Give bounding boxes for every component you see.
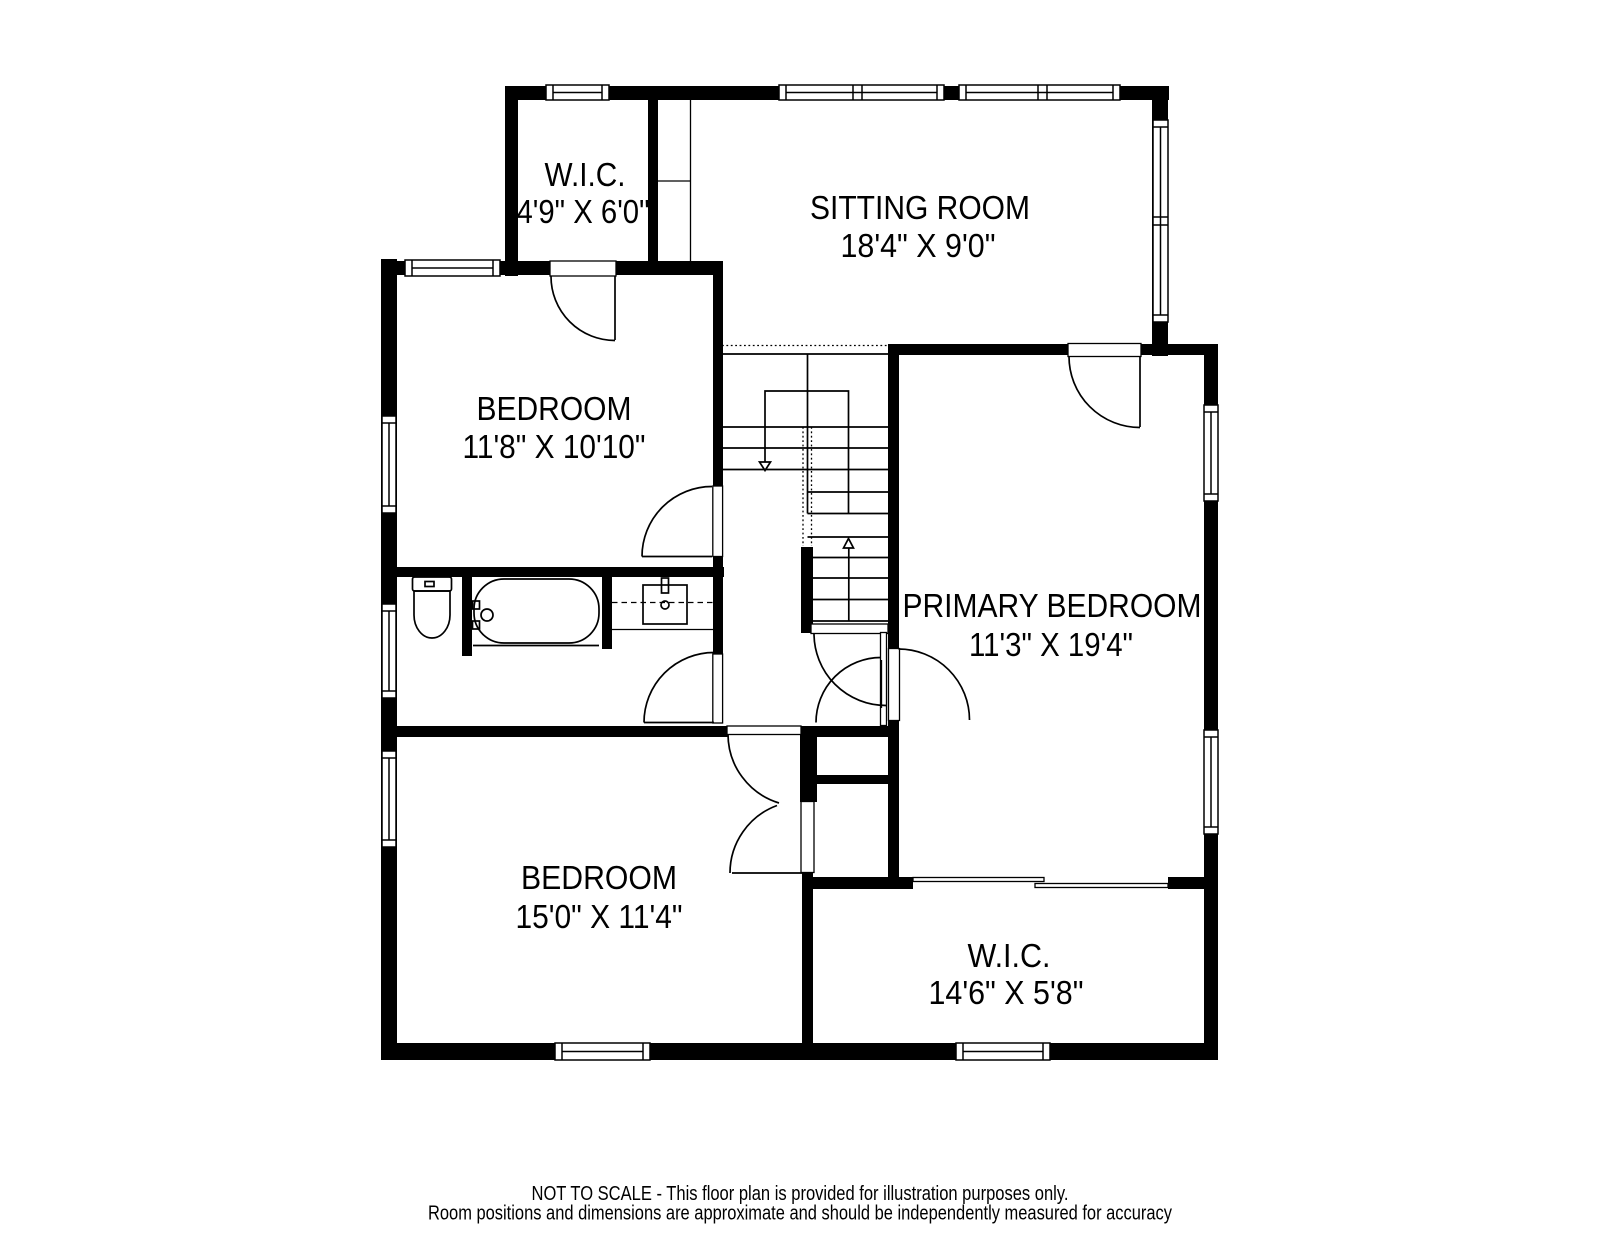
svg-text:PRIMARY BEDROOM: PRIMARY BEDROOM xyxy=(903,587,1202,624)
svg-text:18'4" X 9'0": 18'4" X 9'0" xyxy=(841,227,996,264)
svg-text:W.I.C.: W.I.C. xyxy=(968,937,1051,974)
svg-text:SITTING ROOM: SITTING ROOM xyxy=(810,189,1030,226)
svg-text:11'3" X 19'4": 11'3" X 19'4" xyxy=(969,626,1133,663)
svg-text:BEDROOM: BEDROOM xyxy=(477,390,632,427)
svg-text:W.I.C.: W.I.C. xyxy=(545,156,626,193)
svg-text:11'8" X 10'10": 11'8" X 10'10" xyxy=(463,428,646,465)
svg-text:Room positions and dimensions: Room positions and dimensions are approx… xyxy=(428,1203,1172,1225)
svg-text:14'6" X 5'8": 14'6" X 5'8" xyxy=(929,974,1084,1011)
svg-text:4'9" X 6'0": 4'9" X 6'0" xyxy=(517,193,650,230)
svg-text:BEDROOM: BEDROOM xyxy=(521,859,677,896)
svg-text:15'0" X 11'4": 15'0" X 11'4" xyxy=(516,898,683,935)
